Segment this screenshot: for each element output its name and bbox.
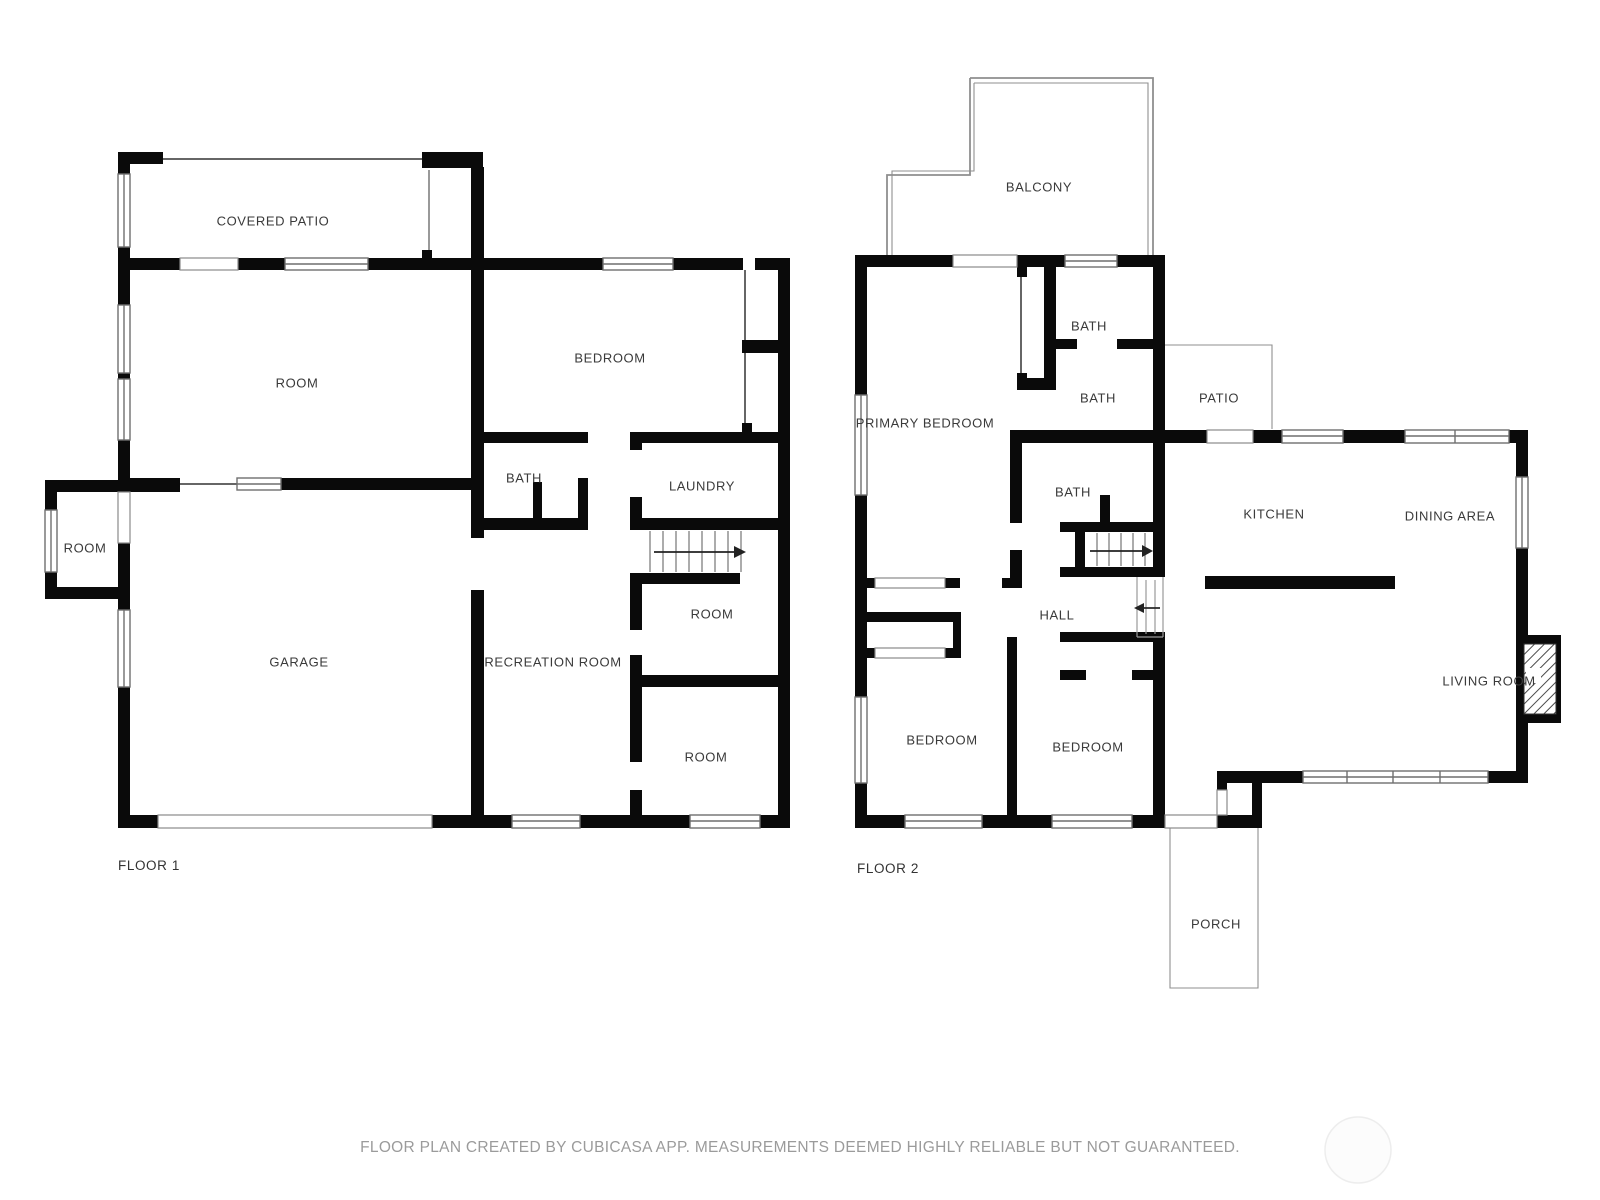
room-label-recreation: RECREATION ROOM [484, 655, 621, 670]
room-label-garage: GARAGE [269, 655, 328, 670]
floor-plan-canvas: COVERED PATIO ROOM BEDROOM BATH LAUNDRY … [0, 0, 1600, 1200]
room-label-laundry: LAUNDRY [669, 479, 735, 494]
garage-door [158, 815, 432, 828]
room-label-bath-lower: BATH [1055, 485, 1091, 500]
room-label-bedroom-left: BEDROOM [906, 733, 977, 748]
page-background [0, 0, 1600, 1200]
floor2-title: FLOOR 2 [857, 861, 919, 876]
room-label-room-small: ROOM [64, 541, 107, 556]
patio-door [1207, 430, 1253, 443]
room-label-bath-f1: BATH [506, 471, 542, 486]
room-label-porch: PORCH [1191, 917, 1241, 932]
room-label-bath-mid: BATH [1080, 391, 1116, 406]
room-label-kitchen: KITCHEN [1243, 507, 1304, 522]
footer-disclaimer: FLOOR PLAN CREATED BY CUBICASA APP. MEAS… [360, 1139, 1240, 1156]
room-label-bedroom-right: BEDROOM [1052, 740, 1123, 755]
room-label-hall: HALL [1040, 608, 1075, 623]
room-label-room-mid: ROOM [691, 607, 734, 622]
room-label-primary-bedroom: PRIMARY BEDROOM [856, 416, 995, 431]
porch-door [1165, 815, 1217, 828]
cubicasa-logo-mark [1325, 1117, 1391, 1183]
room-label-living-room: LIVING ROOM [1442, 674, 1535, 689]
room-label-patio: PATIO [1199, 391, 1239, 406]
floor1-title: FLOOR 1 [118, 858, 180, 873]
room-label-room-bottom: ROOM [685, 750, 728, 765]
room-label-balcony: BALCONY [1006, 180, 1072, 195]
room-label-bedroom-f1: BEDROOM [574, 351, 645, 366]
room-label-covered-patio: COVERED PATIO [217, 214, 330, 229]
balcony-door [953, 255, 1017, 267]
room-label-room-upper: ROOM [276, 376, 319, 391]
room-label-bath-top: BATH [1071, 319, 1107, 334]
room-label-dining-area: DINING AREA [1405, 509, 1495, 524]
